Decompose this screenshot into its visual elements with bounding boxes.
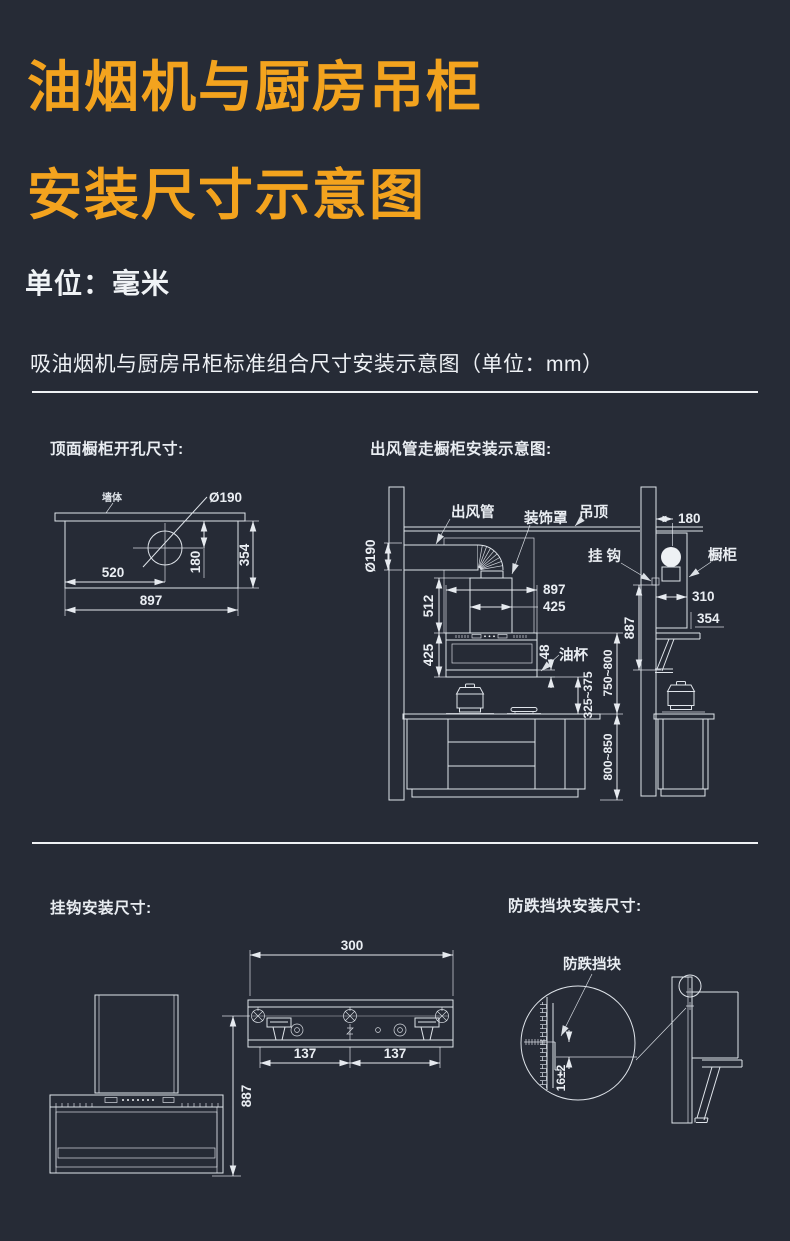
top-right-diagram: Ø190 512 425 897 425 — [363, 487, 737, 800]
top-left-diagram: Ø190 墙体 180 354 520 897 — [55, 490, 259, 616]
wall-hatch-strip — [55, 513, 245, 521]
dim-354: 354 — [237, 543, 252, 566]
dim-310: 310 — [692, 589, 715, 604]
dim-137-right: 137 — [384, 1046, 407, 1061]
dim-hole-dia: Ø190 — [209, 490, 242, 505]
dim-897: 897 — [140, 593, 163, 608]
mount-plate-side — [672, 977, 692, 1123]
pot-left — [457, 684, 484, 712]
dim-137-left: 137 — [294, 1046, 317, 1061]
bottom-left-diagram: 887 300 13 — [50, 938, 453, 1176]
duct-circle — [661, 547, 681, 567]
ceiling-label: 吊顶 — [579, 504, 608, 521]
wall-label: 墙体 — [102, 491, 123, 504]
dim-520: 520 — [102, 565, 125, 580]
anti-fall-block-label: 防跌挡块 — [563, 955, 621, 973]
dim-512: 512 — [421, 595, 436, 618]
dim-425h: 425 — [421, 643, 436, 666]
dim-354r: 354 — [697, 611, 720, 626]
dim-48: 48 — [537, 644, 552, 660]
diagram-canvas: Ø190 墙体 180 354 520 897 — [0, 0, 790, 1241]
screw-marks — [252, 1007, 449, 1023]
hook-slots — [267, 1018, 439, 1040]
dim-750-800: 750~800 — [601, 649, 615, 696]
wall-left — [389, 487, 404, 800]
dim-180r: 180 — [678, 511, 701, 526]
dim-887r: 887 — [622, 617, 637, 640]
dim-425w: 425 — [543, 599, 566, 614]
dim-180: 180 — [188, 551, 203, 574]
duct-label: 出风管 — [451, 503, 495, 521]
cover-label: 装饰罩 — [523, 509, 568, 527]
dim-duct-dia: Ø190 — [363, 539, 378, 572]
wall-right — [641, 487, 656, 796]
dim-897w: 897 — [543, 582, 566, 597]
dim-800-850: 800~850 — [601, 733, 615, 780]
hood-chimney — [95, 995, 178, 1093]
dim-300: 300 — [341, 938, 364, 953]
page: 油烟机与厨房吊柜 安装尺寸示意图 单位：毫米 吸油烟机与厨房吊柜标准组合尺寸安装… — [0, 0, 790, 1241]
hood-body — [50, 1107, 223, 1173]
dim-16: 16±2 — [554, 1064, 568, 1091]
dim-887: 887 — [239, 1085, 254, 1108]
bottom-right-diagram: 防跌挡块 16±2 — [521, 955, 742, 1123]
hook-label: 挂钩 — [588, 547, 625, 565]
cabinet-label: 橱柜 — [708, 546, 737, 564]
pot-right — [668, 682, 695, 710]
oil-cup-label: 油杯 — [559, 646, 588, 664]
dim-325-375: 325~375 — [581, 671, 595, 718]
